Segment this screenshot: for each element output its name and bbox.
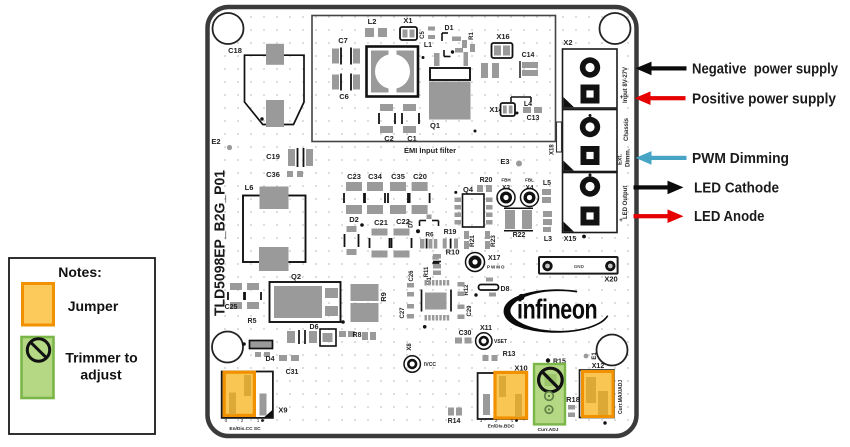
svg-text:R23: R23	[490, 235, 497, 247]
svg-text:FBL: FBL	[525, 178, 534, 183]
svg-text:C13: C13	[527, 115, 540, 122]
svg-text:R14: R14	[448, 418, 461, 425]
svg-text:X1: X1	[403, 16, 412, 25]
svg-text:C34: C34	[368, 172, 383, 181]
svg-text:X15: X15	[564, 236, 577, 243]
svg-text:Notes:: Notes:	[58, 264, 102, 280]
svg-text:X20: X20	[604, 275, 617, 284]
svg-text:LED Cathode: LED Cathode	[694, 180, 779, 196]
svg-text:Ext.: Ext.	[618, 154, 624, 165]
svg-text:L4: L4	[524, 101, 532, 108]
svg-text:IVCC: IVCC	[424, 362, 436, 368]
svg-text:C36: C36	[266, 170, 280, 179]
svg-text:C29: C29	[467, 305, 473, 317]
svg-text:X10: X10	[514, 364, 527, 373]
svg-text:Trimmer to: Trimmer to	[65, 350, 137, 366]
svg-text:L5: L5	[543, 180, 551, 187]
svg-text:Curr.MAX/ADJ: Curr.MAX/ADJ	[618, 380, 624, 414]
svg-text:D7: D7	[409, 220, 415, 228]
svg-text:R22: R22	[513, 232, 526, 239]
svg-text:C2: C2	[384, 134, 394, 143]
svg-text:+: +	[619, 217, 623, 224]
svg-text:X12: X12	[592, 363, 605, 370]
svg-text:Chassis: Chassis	[624, 117, 630, 141]
svg-text:E3: E3	[500, 157, 509, 166]
svg-text:En/Dis.BDC: En/Dis.BDC	[488, 424, 515, 430]
svg-text:R6: R6	[425, 232, 434, 239]
svg-text:L6: L6	[245, 183, 254, 192]
svg-text:EMI Input filter: EMI Input filter	[404, 146, 456, 155]
svg-text:X8: X8	[407, 343, 413, 351]
svg-text:R11: R11	[424, 266, 430, 277]
svg-text:C27: C27	[400, 307, 406, 319]
svg-text:X18: X18	[550, 144, 556, 155]
svg-text:infineon: infineon	[517, 295, 597, 325]
svg-text:Q1: Q1	[430, 121, 440, 130]
svg-text:L1: L1	[424, 42, 432, 49]
svg-text:Positive power supply: Positive power supply	[692, 91, 836, 107]
svg-text:X2: X2	[563, 38, 572, 47]
svg-text:C6: C6	[339, 92, 349, 101]
svg-text:R12: R12	[464, 284, 470, 296]
svg-text:C18: C18	[228, 46, 242, 55]
svg-text:X16: X16	[496, 32, 509, 41]
svg-text:C25: C25	[225, 304, 238, 311]
svg-text:C35: C35	[391, 172, 405, 181]
svg-text:R8: R8	[353, 332, 362, 339]
svg-text:Negative power supply: Negative power supply	[692, 62, 838, 78]
svg-text:C5: C5	[420, 31, 426, 39]
svg-text:C21: C21	[374, 218, 388, 227]
svg-text:R21: R21	[469, 235, 476, 247]
svg-text:Dimm.: Dimm.	[626, 148, 632, 167]
svg-text:LED Anode: LED Anode	[694, 209, 765, 225]
svg-text:C26: C26	[409, 270, 415, 282]
svg-text:Curr.ADJ: Curr.ADJ	[538, 427, 559, 433]
svg-text:C14: C14	[522, 52, 535, 59]
svg-text:R9: R9	[379, 292, 388, 302]
svg-text:C1: C1	[407, 134, 417, 143]
svg-text:D1: D1	[445, 25, 454, 32]
svg-text:C31: C31	[286, 369, 299, 376]
svg-text:C20: C20	[413, 172, 427, 181]
svg-text:L2: L2	[368, 17, 377, 26]
svg-text:+: +	[620, 94, 624, 101]
svg-text:X17: X17	[488, 255, 501, 262]
svg-text:E1: E1	[592, 352, 598, 360]
svg-text:adjust: adjust	[80, 367, 122, 383]
svg-text:C19: C19	[266, 152, 280, 161]
svg-text:VSET: VSET	[494, 339, 507, 345]
svg-text:E2: E2	[211, 137, 220, 146]
svg-text:C7: C7	[338, 36, 348, 45]
svg-text:Jumper: Jumper	[68, 298, 119, 314]
svg-text:R18: R18	[566, 395, 580, 404]
svg-text:R19: R19	[444, 229, 457, 236]
svg-text:L3: L3	[544, 236, 552, 243]
svg-text:Q4: Q4	[463, 185, 474, 194]
svg-text:Q2: Q2	[291, 272, 301, 281]
svg-text:GND: GND	[574, 264, 585, 269]
svg-text:En/Dis.CC SC: En/Dis.CC SC	[229, 426, 261, 432]
svg-text:FBH: FBH	[501, 178, 510, 183]
svg-text:R1: R1	[469, 32, 475, 40]
svg-text:C30: C30	[459, 330, 472, 337]
svg-text:D4: D4	[266, 356, 275, 363]
svg-text:LED Output: LED Output	[623, 186, 629, 219]
svg-text:X11: X11	[480, 325, 492, 332]
svg-text:D8: D8	[501, 286, 510, 293]
svg-text:C23: C23	[347, 172, 361, 181]
svg-text:X9: X9	[278, 406, 287, 415]
svg-text:D2: D2	[349, 215, 359, 224]
svg-text:R20: R20	[480, 177, 493, 184]
svg-text:R5: R5	[248, 318, 257, 325]
svg-text:PWM Dimming: PWM Dimming	[692, 151, 789, 167]
svg-text:D6: D6	[310, 324, 319, 331]
svg-text:PWMO: PWMO	[487, 265, 506, 270]
svg-text:Input 8V-27V: Input 8V-27V	[623, 67, 629, 103]
svg-text:TLD5098EP_B2G_P01: TLD5098EP_B2G_P01	[212, 170, 229, 316]
svg-text:R13: R13	[503, 351, 516, 358]
svg-text:R10: R10	[446, 248, 460, 257]
